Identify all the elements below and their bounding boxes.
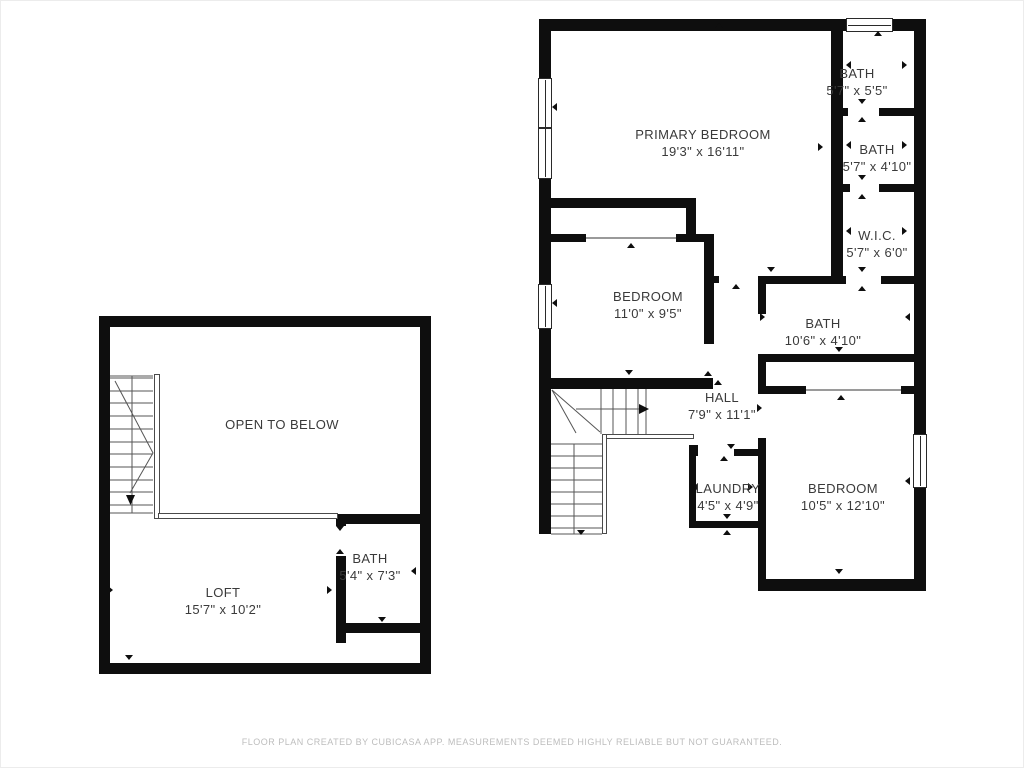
room-dims: 11'0" x 9'5" xyxy=(613,305,683,322)
room-label-open-to-below: OPEN TO BELOW xyxy=(225,416,339,433)
wall xyxy=(901,386,914,394)
wall xyxy=(689,521,766,528)
wall xyxy=(539,179,551,284)
marker xyxy=(905,477,910,485)
staircase xyxy=(107,373,155,519)
room-dims: 10'5" x 12'10" xyxy=(801,497,885,514)
wall xyxy=(879,108,914,116)
wall xyxy=(734,449,758,456)
room-dims: 5'7" x 5'5" xyxy=(826,82,887,99)
wall xyxy=(704,234,714,344)
marker xyxy=(715,23,723,28)
wall xyxy=(539,19,551,78)
room-name: BATH xyxy=(785,315,862,332)
marker xyxy=(720,456,728,461)
marker xyxy=(704,371,712,376)
room-dims: 10'6" x 4'10" xyxy=(785,332,862,349)
wall xyxy=(99,316,431,327)
room-dims: 15'7" x 10'2" xyxy=(185,601,262,618)
wall xyxy=(758,579,926,591)
room-label-hall: HALL 7'9" x 11'1" xyxy=(688,389,756,423)
marker xyxy=(835,569,843,574)
room-name: BATH xyxy=(826,65,887,82)
marker xyxy=(625,370,633,375)
marker xyxy=(858,175,866,180)
marker xyxy=(704,339,712,344)
window xyxy=(913,434,927,488)
stair-railing xyxy=(158,513,338,519)
room-dims: 19'3" x 16'11" xyxy=(635,143,771,160)
room-dims: 5'4" x 7'3" xyxy=(339,567,400,584)
wall xyxy=(843,184,850,192)
floorplan-canvas: PRIMARY BEDROOM 19'3" x 16'11" BATH 5'7"… xyxy=(0,0,1024,768)
room-name: BATH xyxy=(843,141,912,158)
room-name: LAUNDRY xyxy=(696,480,761,497)
marker xyxy=(757,404,762,412)
room-name: LOFT xyxy=(185,584,262,601)
sliding-door-track xyxy=(586,237,676,239)
wall xyxy=(914,19,926,434)
marker xyxy=(327,586,332,594)
marker xyxy=(577,530,585,535)
marker xyxy=(125,655,133,660)
marker xyxy=(723,530,731,535)
room-dims: 7'9" x 11'1" xyxy=(688,406,756,423)
room-label-bath-upper: BATH 5'7" x 5'5" xyxy=(826,65,887,99)
wall xyxy=(758,276,846,284)
room-name: W.I.C. xyxy=(846,227,907,244)
room-label-loft: LOFT 15'7" x 10'2" xyxy=(185,584,262,618)
room-name: BEDROOM xyxy=(801,480,885,497)
marker xyxy=(552,103,557,111)
wall xyxy=(879,184,914,192)
stair-direction-arrow xyxy=(639,404,649,414)
marker xyxy=(378,617,386,622)
room-name: PRIMARY BEDROOM xyxy=(635,126,771,143)
wall xyxy=(758,354,914,362)
room-label-bath-middle: BATH 5'7" x 4'10" xyxy=(843,141,912,175)
marker xyxy=(818,143,823,151)
marker xyxy=(858,99,866,104)
marker xyxy=(837,395,845,400)
wall xyxy=(758,386,806,394)
marker xyxy=(732,284,740,289)
room-label-bedroom-lower: BEDROOM 10'5" x 12'10" xyxy=(801,480,885,514)
room-label-bath-hall: BATH 10'6" x 4'10" xyxy=(785,315,862,349)
staircase xyxy=(546,384,656,538)
window xyxy=(846,18,893,32)
wall xyxy=(758,284,766,314)
marker xyxy=(767,267,775,272)
wall xyxy=(843,108,848,116)
window-divider xyxy=(538,127,552,129)
marker xyxy=(411,567,416,575)
marker xyxy=(858,286,866,291)
room-dims: 5'7" x 4'10" xyxy=(843,158,912,175)
sliding-door-track xyxy=(806,389,901,391)
marker xyxy=(727,444,735,449)
wall xyxy=(549,198,694,208)
stair-direction-arrow xyxy=(126,495,135,505)
window xyxy=(538,284,552,329)
marker xyxy=(760,313,765,321)
marker xyxy=(723,514,731,519)
wall xyxy=(914,488,926,591)
room-name: BATH xyxy=(339,550,400,567)
wall xyxy=(549,234,586,242)
wall xyxy=(881,276,914,284)
room-label-wic: W.I.C. 5'7" x 6'0" xyxy=(846,227,907,261)
room-name: HALL xyxy=(688,389,756,406)
marker xyxy=(902,61,907,69)
marker xyxy=(108,586,113,594)
marker xyxy=(336,526,344,531)
room-label-laundry: LAUNDRY 4'5" x 4'9" xyxy=(696,480,761,514)
room-dims: 5'7" x 6'0" xyxy=(846,244,907,261)
marker xyxy=(858,267,866,272)
wall xyxy=(99,663,431,674)
wall xyxy=(420,316,431,674)
marker xyxy=(874,31,882,36)
marker xyxy=(905,313,910,321)
marker xyxy=(858,117,866,122)
room-label-loft-bath: BATH 5'4" x 7'3" xyxy=(339,550,400,584)
marker xyxy=(714,380,722,385)
room-name: BEDROOM xyxy=(613,288,683,305)
marker xyxy=(552,299,557,307)
disclaimer-text: FLOOR PLAN CREATED BY CUBICASA APP. MEAS… xyxy=(1,737,1023,747)
marker xyxy=(378,518,386,523)
room-label-primary-bedroom: PRIMARY BEDROOM 19'3" x 16'11" xyxy=(635,126,771,160)
room-dims: 4'5" x 4'9" xyxy=(696,497,761,514)
wall xyxy=(336,623,420,633)
wall xyxy=(539,19,846,31)
room-label-bedroom-middle: BEDROOM 11'0" x 9'5" xyxy=(613,288,683,322)
marker xyxy=(627,243,635,248)
marker xyxy=(858,194,866,199)
room-name: OPEN TO BELOW xyxy=(225,416,339,433)
